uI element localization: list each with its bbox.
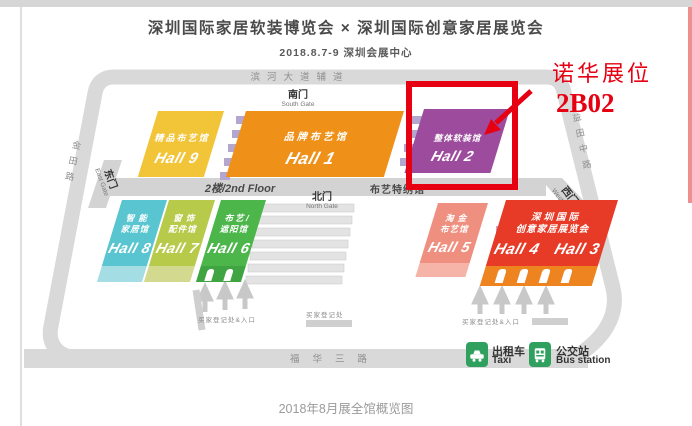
stairs	[246, 204, 354, 284]
south-gate-en: South Gate	[268, 102, 328, 109]
north-gate-en: North Gate	[292, 204, 352, 211]
hall-1: 品牌布艺馆 Hall 1	[226, 111, 404, 177]
hall-4-3-name2: 创意家居展览会	[495, 224, 611, 236]
hall-6-label: Hall 6	[203, 241, 253, 257]
hall-4-3-name: 深圳国际	[499, 200, 618, 224]
hall-3-label: Hall 3	[552, 241, 602, 259]
road-top-label: 滨河大道辅道	[200, 69, 400, 83]
hall-5-name2: 布艺馆	[428, 224, 481, 235]
second-floor-label: 2楼/2nd Floor	[190, 180, 290, 196]
hall-4-label: Hall 4	[492, 241, 542, 259]
hall-8-label: Hall 8	[104, 241, 154, 257]
road-bottom-label: 福华三路	[240, 351, 430, 365]
registration-bar-right	[532, 318, 568, 325]
hall-4-3-door	[495, 269, 507, 283]
taxi-label-en: Taxi	[492, 355, 511, 366]
bus-icon	[529, 342, 551, 367]
hall-9-label: Hall 9	[141, 150, 212, 167]
registration-bar-center	[306, 320, 352, 327]
hall-6-name2: 遮阳馆	[211, 224, 259, 235]
hall-6-name: 布艺/	[214, 200, 266, 224]
north-gate: 北门 North Gate	[292, 193, 352, 210]
hall-2-name: 整体软装馆	[413, 133, 502, 144]
hall-6-door	[204, 269, 215, 281]
north-gate-cn: 北门	[292, 193, 352, 204]
south-gate: 南门 South Gate	[268, 91, 328, 108]
hall-8-name: 智能	[115, 200, 167, 224]
taxi-icon	[466, 342, 488, 367]
booth-annotation-number: 2B02	[556, 88, 676, 119]
hall-8-name2: 家居馆	[112, 224, 160, 235]
registration-entrance-right: 买家登记处&入口	[462, 316, 520, 326]
hall-6-door	[223, 269, 234, 281]
hall-4-3-door	[517, 269, 529, 283]
hall-5-label: Hall 5	[422, 240, 477, 256]
hall-1-name: 品牌布艺馆	[236, 132, 398, 145]
hall-7-name: 窗饰	[162, 200, 215, 224]
registration-center: 买家登记处	[306, 309, 344, 319]
hall-7-label: Hall 7	[151, 241, 202, 257]
entrance-arrows	[200, 285, 551, 314]
bus-label-en: Bus station	[556, 355, 610, 366]
exhibition-map-page: 深圳国际家居软装博览会 × 深圳国际创意家居展览会 2018.8.7-9 深圳会…	[0, 0, 692, 426]
hall-2-label: Hall 2	[407, 149, 498, 165]
booth-annotation-name: 诺华展位	[552, 56, 688, 88]
registration-entrance-left: 买家登记处&入口	[198, 314, 256, 324]
special-hall-label: 布艺特绣馆	[370, 181, 425, 196]
hall-1-label: Hall 1	[228, 149, 392, 169]
hall-4-3-door	[539, 269, 551, 283]
hall-7-name2: 配件馆	[159, 224, 208, 235]
south-gate-cn: 南门	[268, 91, 328, 102]
hall-5-name: 淘金	[432, 203, 488, 224]
hall-9-name: 精品布艺馆	[148, 133, 217, 144]
hall-4-3-door	[561, 269, 573, 283]
